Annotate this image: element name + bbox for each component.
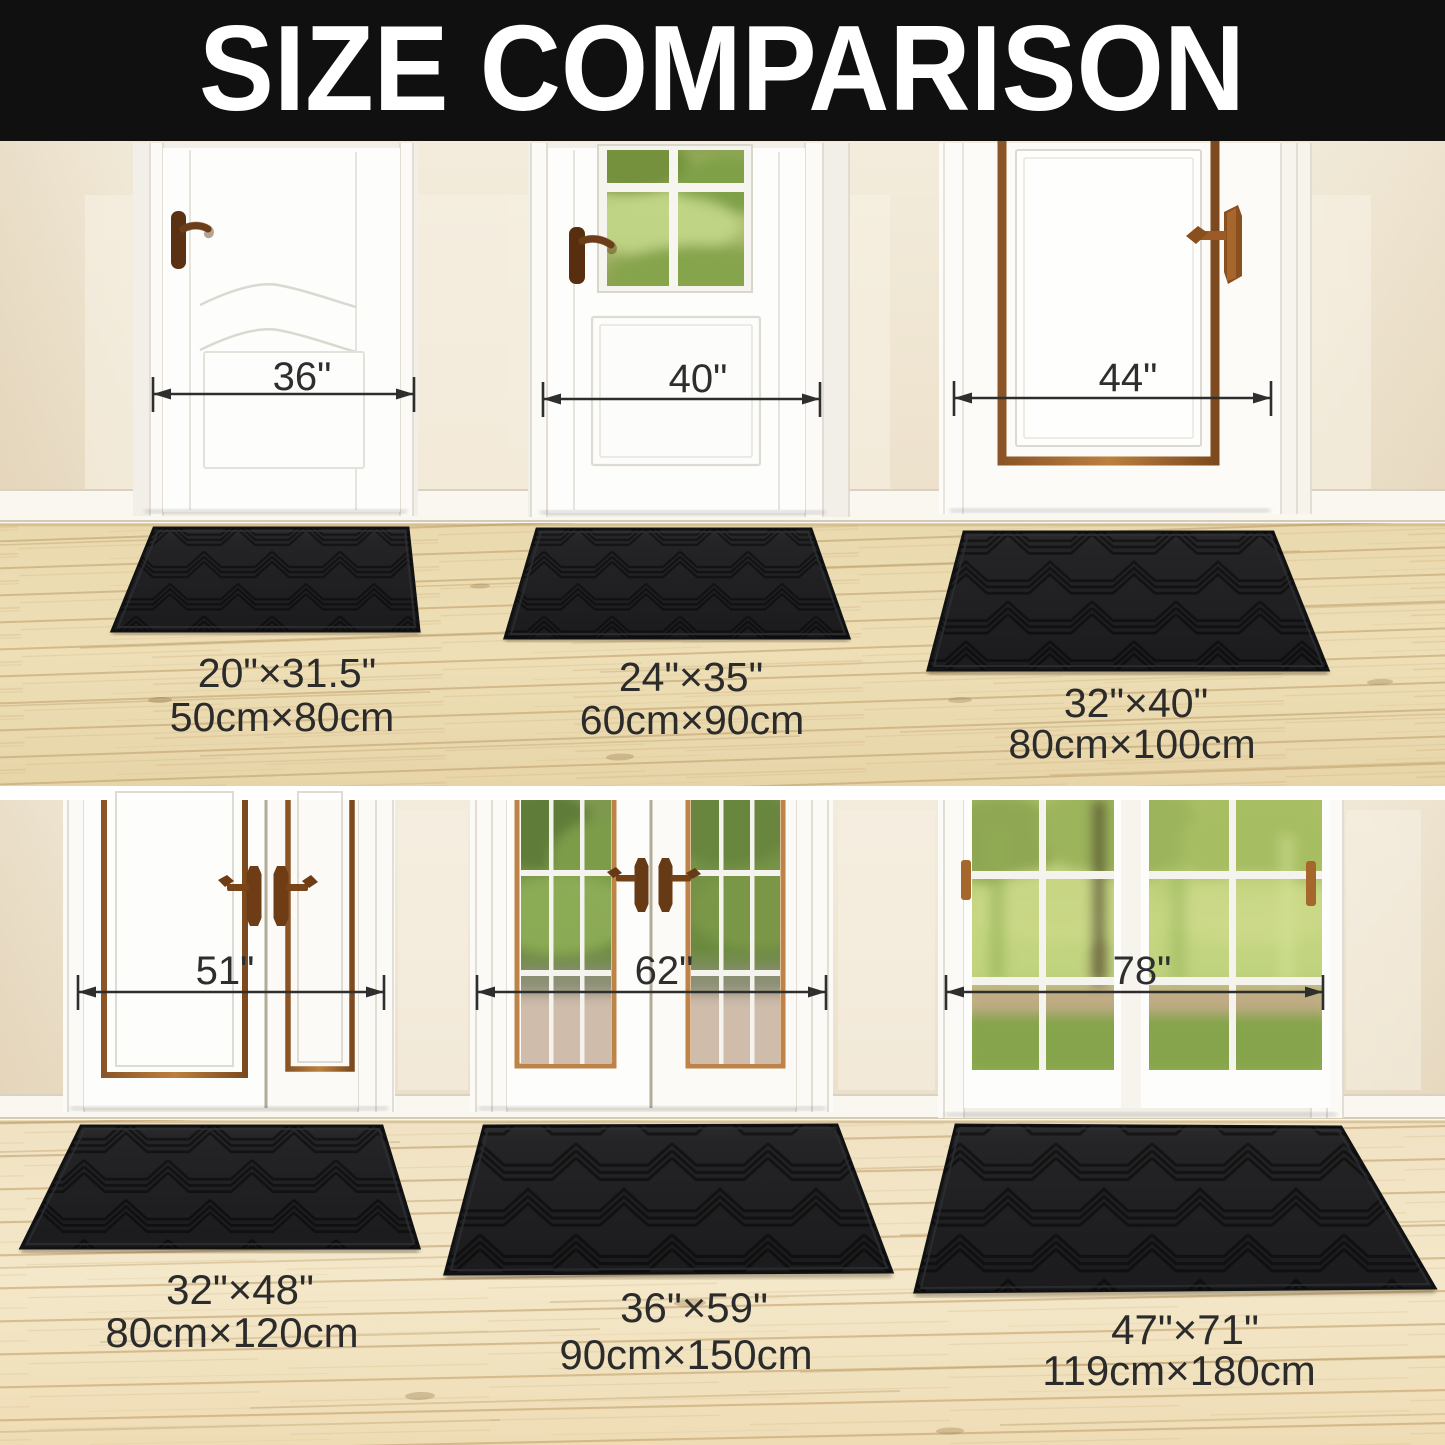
svg-text:20"×31.5": 20"×31.5" (198, 650, 376, 696)
svg-text:80cm×100cm: 80cm×100cm (1008, 721, 1255, 767)
svg-text:62": 62" (635, 949, 694, 993)
svg-text:40": 40" (669, 357, 728, 401)
svg-text:32"×40": 32"×40" (1064, 680, 1208, 726)
svg-text:24"×35": 24"×35" (619, 654, 763, 700)
svg-text:60cm×90cm: 60cm×90cm (580, 697, 804, 743)
svg-text:36": 36" (273, 355, 332, 399)
svg-text:90cm×150cm: 90cm×150cm (559, 1331, 812, 1378)
svg-text:44": 44" (1099, 356, 1158, 400)
svg-text:32"×48": 32"×48" (166, 1266, 314, 1313)
svg-text:78": 78" (1113, 949, 1172, 993)
svg-text:SIZE COMPARISON: SIZE COMPARISON (199, 0, 1245, 136)
svg-text:119cm×180cm: 119cm×180cm (1042, 1347, 1316, 1394)
svg-text:47"×71": 47"×71" (1111, 1306, 1259, 1353)
svg-text:36"×59": 36"×59" (620, 1284, 768, 1331)
svg-text:80cm×120cm: 80cm×120cm (105, 1309, 358, 1356)
svg-text:51": 51" (196, 949, 255, 993)
svg-text:50cm×80cm: 50cm×80cm (170, 694, 394, 740)
